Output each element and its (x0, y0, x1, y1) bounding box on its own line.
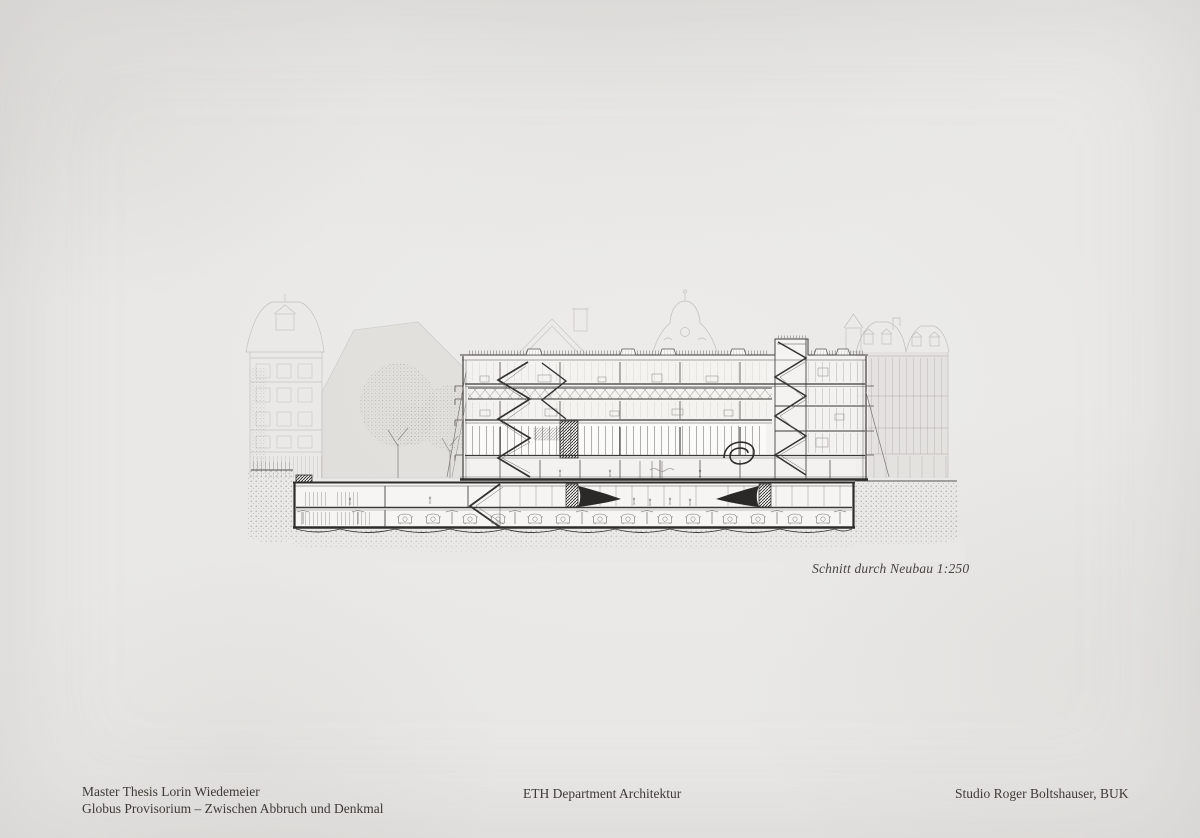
footer-department: ETH Department Architektur (523, 786, 681, 803)
footer-author-line: Master Thesis Lorin Wiedemeier (82, 784, 383, 801)
section-drawing (0, 0, 1200, 838)
presentation-sheet: Schnitt durch Neubau 1:250 Master Thesis… (0, 0, 1200, 838)
footer-author-block: Master Thesis Lorin Wiedemeier Globus Pr… (82, 784, 383, 817)
footer-project-line: Globus Provisorium – Zwischen Abbruch un… (82, 801, 383, 818)
footer-studio: Studio Roger Boltshauser, BUK (955, 786, 1128, 803)
drawing-caption: Schnitt durch Neubau 1:250 (812, 561, 969, 577)
